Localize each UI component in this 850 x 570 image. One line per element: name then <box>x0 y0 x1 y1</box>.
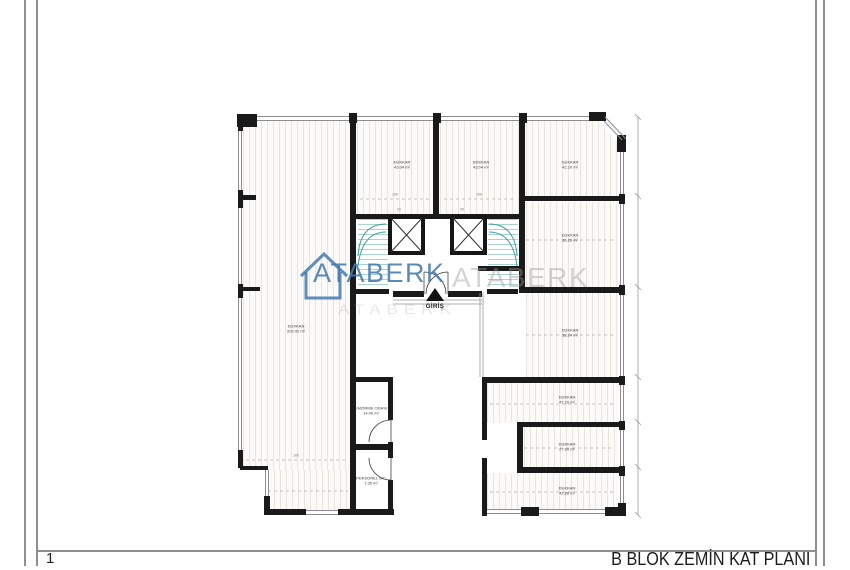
elevator-x-marks <box>391 218 484 252</box>
room-shop-3-fill <box>526 120 619 198</box>
dim-label: 100 <box>286 454 306 458</box>
wall <box>482 383 487 440</box>
room-label-service-2: PERSONEL WC7.35 m² <box>341 476 401 486</box>
room-label-shop-1: DÜKKAN43.04 m² <box>372 160 432 170</box>
wall <box>338 509 394 515</box>
wall <box>433 117 439 218</box>
room-label-service-1: EMZİRME ODASI14.00 m² <box>341 406 401 416</box>
room-label-shop-5: DÜKKAN38.24 m² <box>540 328 600 338</box>
wall <box>618 503 626 516</box>
window-band-bottom-left <box>305 510 339 515</box>
room-label-shop-7: DÜKKAN27.90 m² <box>537 442 597 452</box>
wall <box>619 466 625 476</box>
wall <box>356 289 389 294</box>
wall <box>517 467 625 473</box>
frame-left-inner-line <box>36 0 38 566</box>
watermark-brand-text: ATABERK <box>313 258 446 289</box>
wall <box>619 376 625 385</box>
wall <box>617 135 626 152</box>
room-shop-main-fill-lower <box>268 470 350 510</box>
room-label-shop-3: DÜKKAN42.20 m² <box>540 160 600 170</box>
wall <box>619 285 625 295</box>
sheet-number: 1 <box>46 550 54 567</box>
room-label-shop-6: DÜKKAN47.20 m² <box>537 395 597 405</box>
room-label-shop-4: DÜKKAN36.20 m² <box>540 233 600 243</box>
elevator-shafts <box>390 217 485 253</box>
room-label-shop-main: DÜKKAN202.42 m² <box>266 324 326 334</box>
wall <box>619 421 625 430</box>
wall <box>238 287 260 291</box>
watermark-echo2-text: ATABERK <box>338 302 457 318</box>
frame-right-outer-line <box>823 0 825 566</box>
frame-right-inner-line <box>815 0 817 566</box>
window-band-notch <box>265 470 269 498</box>
wall <box>517 422 625 427</box>
wall <box>264 509 306 515</box>
drawing-title: B BLOK ZEMİN KAT PLANI <box>611 549 810 570</box>
watermark-echo-text: ATABERK <box>452 262 589 294</box>
dim-label: 20 <box>452 208 472 212</box>
wall <box>238 117 243 131</box>
frame-left-outer-line <box>24 0 26 566</box>
entrance-arrow-icon <box>426 288 444 301</box>
dim-label: 20 <box>389 208 409 212</box>
window-band-bottom-right <box>487 509 605 514</box>
wall <box>350 214 525 219</box>
wall <box>619 194 625 204</box>
window-band-top <box>243 116 589 121</box>
wall <box>352 377 393 382</box>
wall <box>240 466 268 470</box>
wall <box>482 458 487 516</box>
wall <box>238 195 256 200</box>
drawing-sheet: { "page": { "sheet_number": "1", "title"… <box>0 0 850 566</box>
wall <box>589 112 606 121</box>
wall <box>352 444 393 450</box>
wall <box>388 442 393 458</box>
wall <box>482 377 625 383</box>
dim-label: 100 <box>469 193 489 197</box>
room-label-shop-8: DÜKKAN42.86 m² <box>537 486 597 496</box>
room-label-shop-2: DÜKKAN43.04 m² <box>451 160 511 170</box>
wall <box>519 196 625 201</box>
wall <box>393 291 424 297</box>
wall <box>517 427 523 472</box>
dim-label: 100 <box>385 193 405 197</box>
wall <box>521 507 539 516</box>
